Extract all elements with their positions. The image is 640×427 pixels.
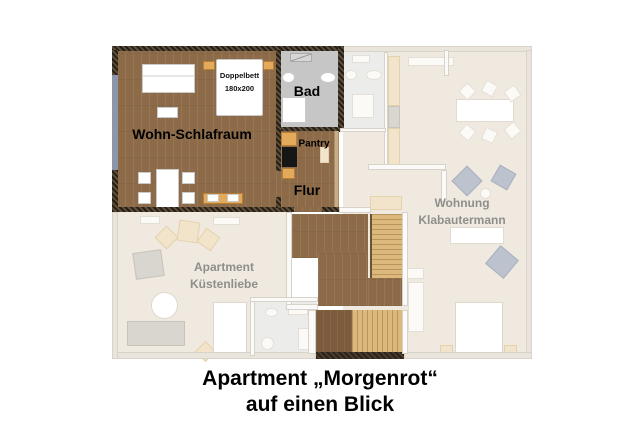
faded-wall-l-horizontal [368, 164, 446, 170]
faded-cabinet-column-mid [388, 106, 400, 128]
label-pantry: Pantry [298, 139, 329, 150]
faded-wall-bath-bottom [340, 128, 386, 132]
bench-cushion-2 [227, 194, 239, 202]
lower-staircase [352, 310, 402, 352]
stair-bottom-wall [316, 352, 404, 359]
pantry-counter [281, 132, 297, 146]
door-living-hall [276, 171, 281, 197]
stairhall-wall-top-right [339, 207, 371, 213]
wall-right-bath [338, 46, 344, 132]
dining-chair-3 [182, 172, 195, 184]
nightstand-left [203, 61, 215, 70]
wall-bottom-living [112, 207, 289, 212]
faded-cabinet-column-low [388, 128, 400, 166]
faded-round-table [151, 292, 178, 319]
coffee-table [157, 107, 178, 118]
door-hall-landing [294, 207, 322, 212]
faded-closet-tall [408, 282, 424, 332]
window-band-left [112, 75, 118, 170]
floorplan-image: Doppelbett 180x200 [0, 0, 640, 427]
faded-bath2-wall-left [250, 301, 255, 356]
faded-wall-mid-vertical [384, 52, 388, 170]
faded-bath-shower [352, 94, 374, 118]
stair-doorway-niche [370, 196, 402, 210]
caption-line-2: auf einen Blick [0, 392, 640, 418]
caption-line-1: Apartment „Morgenrot“ [0, 366, 640, 392]
faded-bath-skylight [352, 55, 370, 63]
wall-right-hall [334, 130, 339, 210]
dining-chair-1 [138, 172, 151, 184]
label-bathroom: Bad [294, 83, 320, 99]
stairhall-wall-right [402, 212, 408, 306]
toilet [282, 72, 295, 83]
faded-closet-small [406, 268, 424, 279]
stairhall-wall-left [286, 212, 292, 306]
wall-bath-bottom [281, 127, 339, 131]
faded-wall-bottom-left [112, 352, 316, 359]
lower-landing-floor [316, 310, 354, 352]
faded-square-table [177, 220, 201, 244]
faded-wall-right [526, 50, 532, 358]
faded-lounge-gray [132, 249, 164, 280]
dining-chair-2 [138, 192, 151, 204]
pantry-cabinet-low [282, 168, 295, 179]
lower-stairs-wall-right [402, 310, 408, 354]
faded-bath2-basin [265, 308, 278, 317]
wall-left-lower [112, 168, 118, 212]
faded-wall-bottom-right [404, 352, 532, 359]
faded-shelf-1 [140, 216, 160, 224]
nightstand-right [263, 61, 274, 70]
shower [282, 97, 306, 123]
pantry-stove [282, 147, 297, 167]
label-neighbor-right: Wohnung Klabautermann [418, 195, 505, 229]
bath-skylight [290, 53, 312, 62]
wall-left-upper [112, 50, 118, 77]
faded-table-mid [450, 227, 504, 244]
faded-shelf-2 [213, 217, 240, 225]
bed-size-label: Doppelbett 180x200 [217, 60, 262, 95]
lower-stairs-wall-left [308, 310, 316, 354]
dining-chair-4 [182, 192, 195, 204]
label-neighbor-left: Apartment Küstenliebe [190, 259, 258, 293]
double-bed: Doppelbett 180x200 [216, 59, 263, 116]
sofa [142, 64, 195, 93]
bench-cushion-1 [207, 194, 219, 202]
label-hallway: Flur [294, 182, 320, 198]
faded-bath-toilet [345, 70, 357, 80]
faded-dining-table [456, 99, 514, 122]
label-living-room: Wohn-Schlafraum [132, 126, 252, 142]
faded-wall-left-lower [112, 212, 118, 359]
faded-bed-right [455, 302, 503, 355]
upper-staircase [370, 214, 402, 278]
faded-bath2-toilet [261, 337, 274, 350]
faded-sideboard-left [127, 321, 185, 346]
washbasin [320, 72, 336, 83]
faded-bath2-wall-top [250, 297, 318, 302]
faded-bath-sink [366, 70, 382, 80]
dining-table [156, 169, 179, 208]
faded-wall-top [343, 46, 532, 52]
faded-cabinet-column-top [388, 56, 400, 106]
faded-wall-small-top [444, 50, 449, 76]
caption-title: Apartment „Morgenrot“ auf einen Blick [0, 366, 640, 418]
landing-floor-c [368, 278, 402, 306]
wall-top [112, 46, 344, 51]
faded-bed-left [213, 302, 247, 353]
landing-floor-b [318, 252, 368, 306]
